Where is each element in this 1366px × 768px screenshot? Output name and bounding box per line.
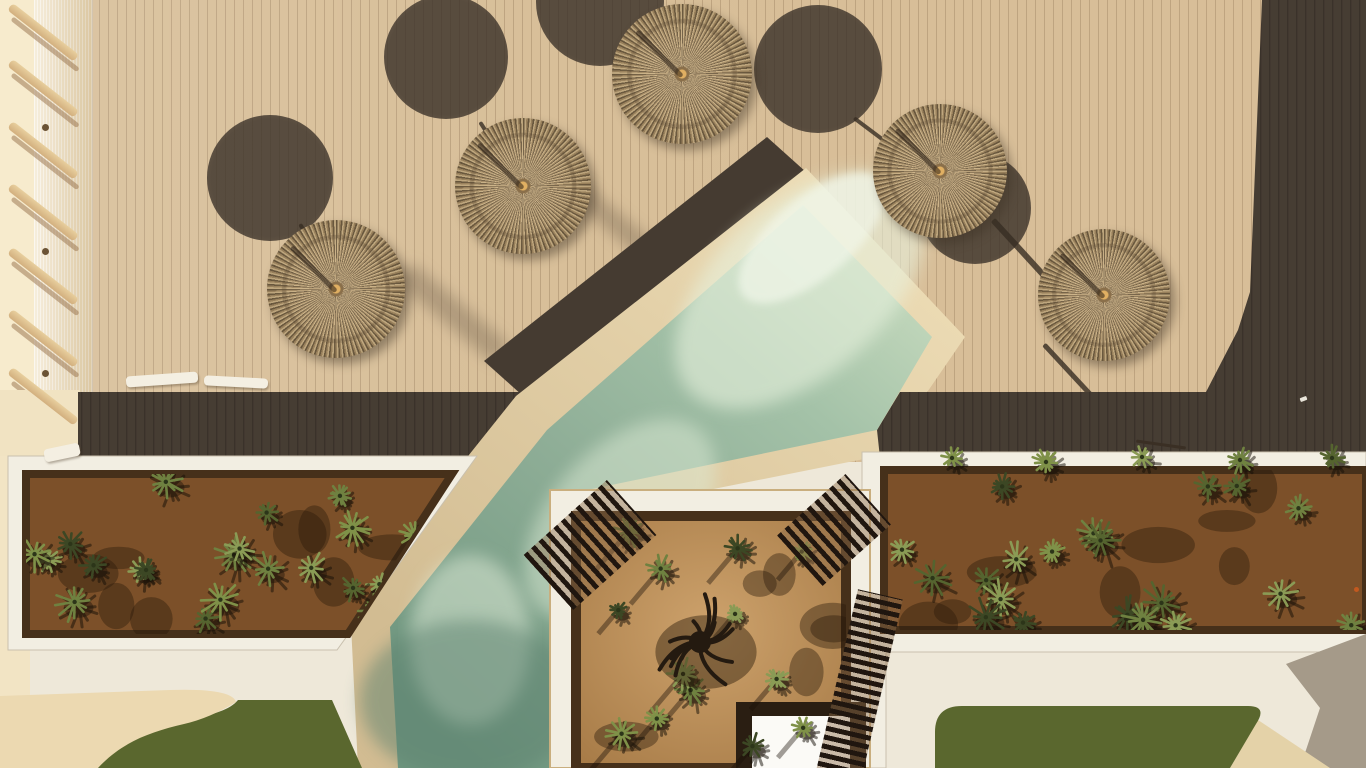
lawn-bottom-right	[935, 706, 1261, 768]
straw-umbrella-3	[612, 4, 752, 144]
fence-post-2	[42, 248, 49, 255]
straw-umbrella-4	[873, 104, 1007, 238]
straw-umbrella-2	[455, 118, 591, 254]
fence-post-3	[42, 370, 49, 377]
straw-umbrella-5	[1038, 229, 1170, 361]
umbrella-pole-2	[477, 143, 525, 191]
straw-umbrella-1	[267, 220, 405, 358]
umbrella-pole-4	[895, 128, 942, 175]
deck-shadow-band-left	[78, 392, 521, 456]
umbrella-pole-5	[1059, 253, 1105, 299]
deck-shadow-top-right	[1206, 0, 1366, 392]
umbrella-pole-1	[289, 245, 337, 293]
umbrella-pole-3	[635, 29, 684, 78]
aerial-pool-photo	[0, 0, 1366, 768]
fence-post-1	[42, 124, 49, 131]
deck-item-3	[1354, 587, 1359, 592]
